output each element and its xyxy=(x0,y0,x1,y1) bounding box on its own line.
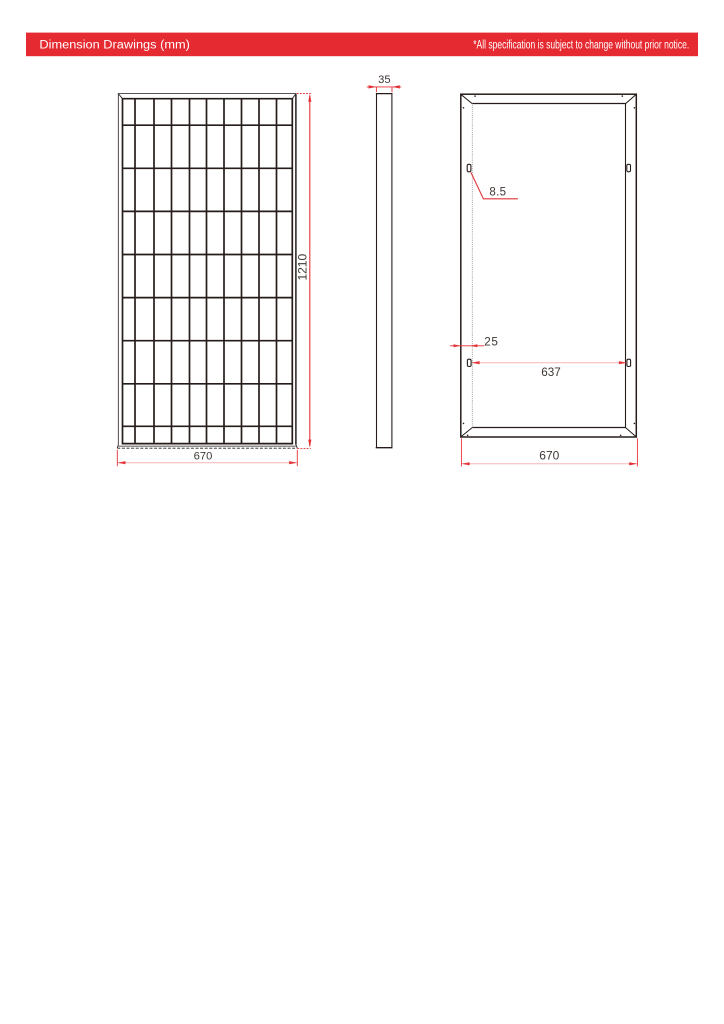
svg-text:1210: 1210 xyxy=(295,254,309,281)
svg-text:Dimension Drawings (mm): Dimension Drawings (mm) xyxy=(39,39,190,51)
svg-text:8.5: 8.5 xyxy=(489,187,506,199)
svg-text:670: 670 xyxy=(539,448,559,462)
svg-text:670: 670 xyxy=(194,450,213,462)
svg-text:25: 25 xyxy=(484,336,498,349)
svg-text:*All specification is subject: *All specification is subject to change … xyxy=(473,38,689,52)
svg-text:35: 35 xyxy=(378,74,390,86)
svg-text:637: 637 xyxy=(541,366,561,379)
